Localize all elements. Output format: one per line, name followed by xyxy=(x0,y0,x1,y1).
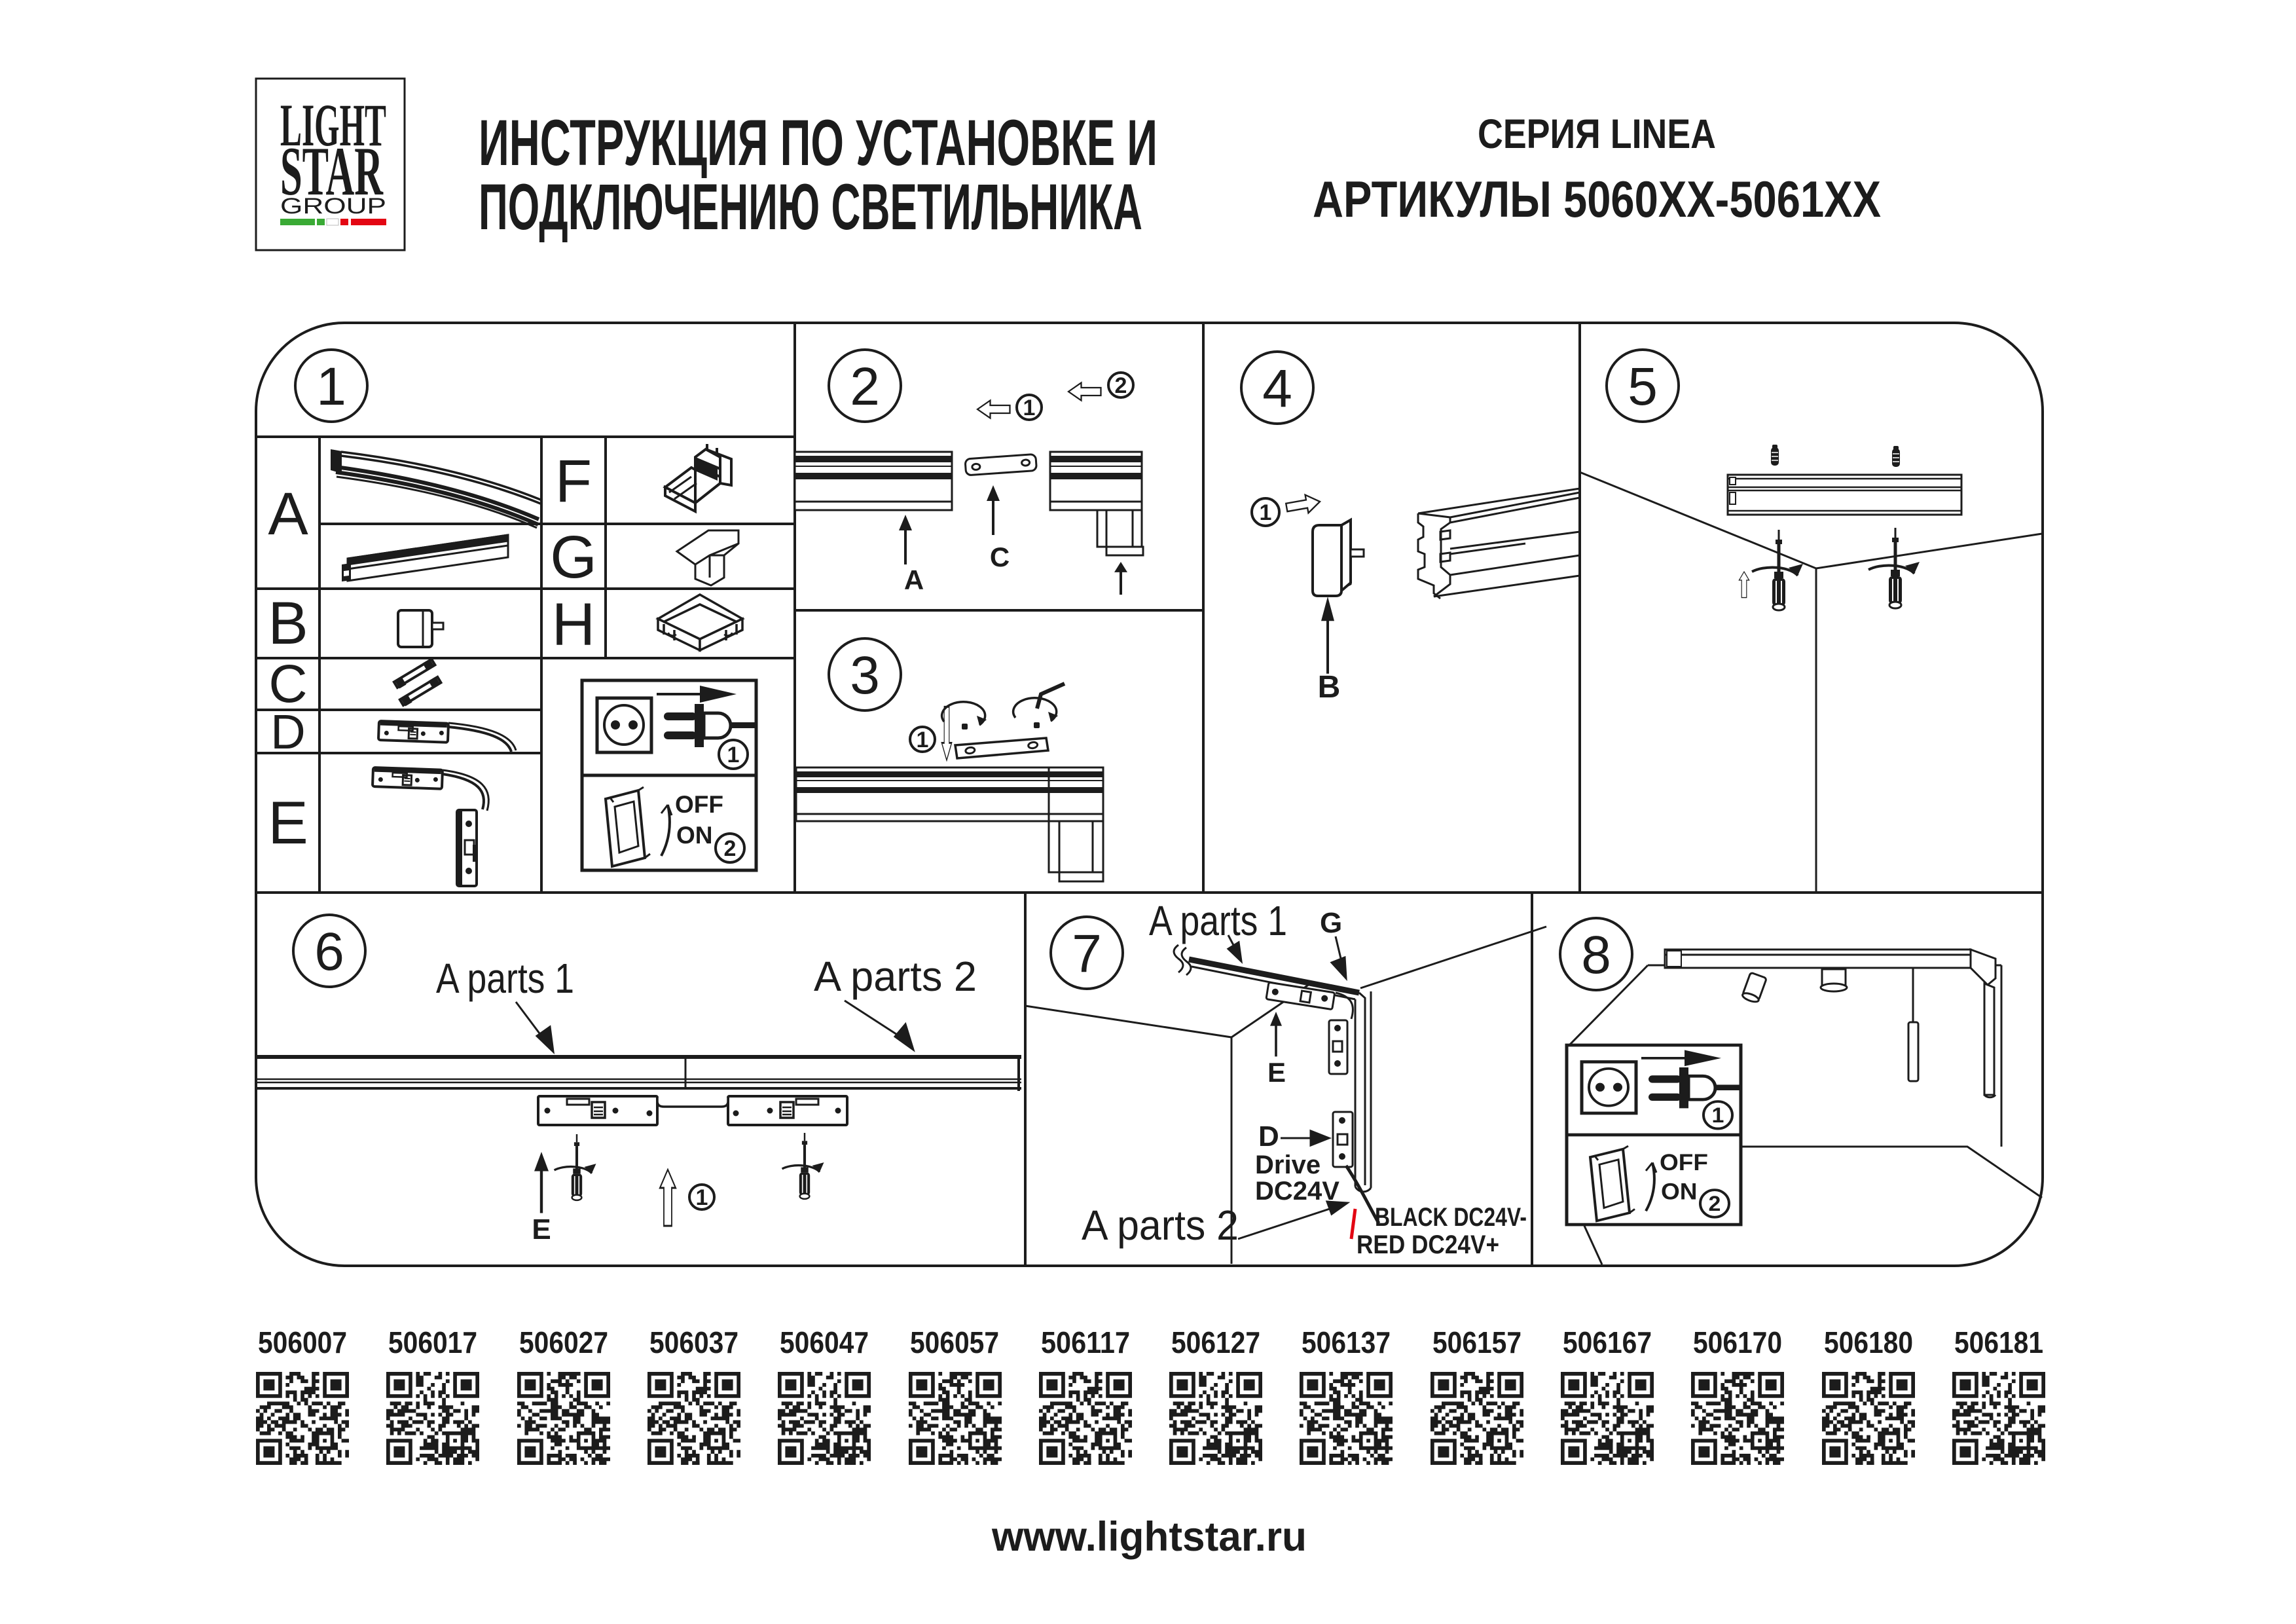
svg-text:1: 1 xyxy=(1260,500,1272,525)
svg-text:506117: 506117 xyxy=(1041,1325,1130,1359)
svg-text:A parts 1: A parts 1 xyxy=(436,955,574,1002)
svg-text:506017: 506017 xyxy=(388,1325,477,1359)
svg-text:1: 1 xyxy=(696,1185,708,1210)
svg-text:506057: 506057 xyxy=(910,1325,999,1359)
svg-text:RED DC24V+: RED DC24V+ xyxy=(1357,1230,1499,1259)
svg-text:ПОДКЛЮЧЕНИЮ СВЕТИЛЬНИКА: ПОДКЛЮЧЕНИЮ СВЕТИЛЬНИКА xyxy=(479,170,1142,243)
svg-text:506157: 506157 xyxy=(1432,1325,1522,1359)
svg-text:B: B xyxy=(1318,670,1341,705)
svg-text:4: 4 xyxy=(1262,359,1292,418)
svg-text:506180: 506180 xyxy=(1824,1325,1913,1359)
svg-text:B: B xyxy=(268,590,308,657)
svg-text:A parts 2: A parts 2 xyxy=(814,953,977,1000)
svg-text:A: A xyxy=(268,481,308,547)
svg-text:6: 6 xyxy=(314,922,344,982)
svg-text:GROUP: GROUP xyxy=(280,194,386,219)
svg-text:3: 3 xyxy=(850,646,880,705)
svg-text:E: E xyxy=(268,790,308,857)
svg-text:506167: 506167 xyxy=(1563,1325,1652,1359)
svg-text:СЕРИЯ LINEA: СЕРИЯ LINEA xyxy=(1478,111,1716,157)
svg-text:506047: 506047 xyxy=(780,1325,869,1359)
svg-text:C: C xyxy=(990,542,1010,572)
svg-text:Drive: Drive xyxy=(1255,1151,1321,1179)
svg-text:E: E xyxy=(1267,1057,1286,1088)
svg-text:7: 7 xyxy=(1072,924,1102,984)
svg-text:A parts 2: A parts 2 xyxy=(1082,1202,1239,1249)
svg-text:8: 8 xyxy=(1581,925,1611,985)
svg-text:2: 2 xyxy=(1115,373,1127,398)
svg-text:A parts 1: A parts 1 xyxy=(1149,897,1287,944)
svg-text:1: 1 xyxy=(1023,396,1036,420)
svg-text:АРТИКУЛЫ 5060XX-5061XX: АРТИКУЛЫ 5060XX-5061XX xyxy=(1313,170,1881,228)
svg-text:ИНСТРУКЦИЯ ПО УСТАНОВКЕ И: ИНСТРУКЦИЯ ПО УСТАНОВКЕ И xyxy=(479,106,1157,179)
svg-text:D: D xyxy=(1258,1120,1279,1153)
svg-text:H: H xyxy=(552,591,595,658)
svg-text:506170: 506170 xyxy=(1693,1325,1782,1359)
svg-text:2: 2 xyxy=(850,357,880,416)
svg-text:506027: 506027 xyxy=(519,1325,608,1359)
svg-text:BLACK DC24V-: BLACK DC24V- xyxy=(1375,1203,1527,1232)
svg-text:G: G xyxy=(1320,907,1342,939)
svg-text:G: G xyxy=(550,524,597,591)
svg-text:1: 1 xyxy=(316,357,346,416)
svg-text:506137: 506137 xyxy=(1302,1325,1391,1359)
svg-text:D: D xyxy=(270,705,305,759)
svg-text:F: F xyxy=(555,448,592,515)
svg-text:506037: 506037 xyxy=(649,1325,738,1359)
svg-text:DC24V: DC24V xyxy=(1255,1177,1339,1206)
svg-text:506007: 506007 xyxy=(258,1325,347,1359)
svg-text:www.lightstar.ru: www.lightstar.ru xyxy=(991,1514,1307,1560)
svg-text:5: 5 xyxy=(1628,357,1658,416)
svg-text:506127: 506127 xyxy=(1171,1325,1260,1359)
svg-text:1: 1 xyxy=(917,728,929,752)
svg-text:E: E xyxy=(532,1213,551,1246)
svg-text:506181: 506181 xyxy=(1954,1325,2043,1359)
svg-text:A: A xyxy=(904,564,924,595)
